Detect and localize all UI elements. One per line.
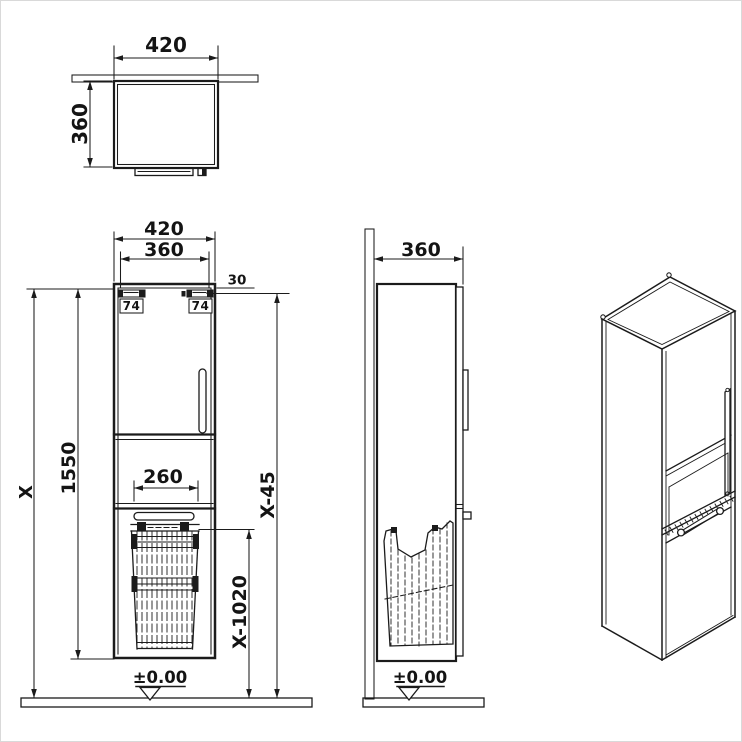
bracket-right-label: 74 — [192, 299, 210, 313]
front-bracket-left — [118, 290, 145, 297]
front-lower-door-handle — [134, 513, 194, 521]
bracket-left-label: 74 — [123, 299, 141, 313]
top-depth-label: 360 — [68, 103, 92, 145]
iso-open-niche — [662, 453, 735, 535]
side-wall-hatch — [365, 229, 374, 699]
side-door-panel — [456, 287, 463, 656]
side-upper-handle — [463, 370, 468, 430]
dim-upper-right-label: X-45 — [257, 471, 279, 518]
top-view-dim-width: 420 — [114, 33, 218, 79]
front-width-label: 420 — [144, 218, 184, 240]
front-datum-label: ±0.00 — [133, 668, 188, 687]
top-view-dim-depth: 360 — [68, 81, 112, 167]
side-depth-label: 360 — [401, 239, 441, 261]
iso-lower-door — [666, 507, 731, 543]
basket-band-middle — [132, 576, 199, 592]
front-bracket-right-tag: 74 — [189, 299, 212, 313]
basket-width-label: 260 — [143, 466, 183, 488]
side-datum: ±0.00 — [393, 668, 448, 700]
side-lower-handle — [463, 512, 471, 519]
front-view: 74 74 — [16, 218, 312, 707]
body-height-label: 1550 — [58, 442, 80, 495]
side-cabinet-outline — [377, 284, 456, 661]
side-view: 360 ±0.00 — [363, 229, 484, 707]
total-height-label: X — [16, 485, 37, 499]
isometric-view — [601, 273, 735, 660]
iso-cabinet-body — [601, 273, 735, 660]
front-dim-bracket-offset: 30 — [207, 273, 289, 294]
side-floor-hatch — [363, 698, 484, 707]
side-dim-depth: 360 — [374, 239, 463, 284]
side-datum-label: ±0.00 — [393, 668, 448, 687]
top-view-door-handle — [135, 169, 206, 176]
front-bracket-span-label: 360 — [144, 239, 184, 261]
front-dim-body-height: 1550 — [58, 289, 114, 659]
front-datum: ±0.00 — [133, 668, 188, 700]
top-view: 420 360 — [68, 33, 258, 176]
front-dim-upper-right: X-45 — [257, 294, 280, 698]
front-dim-bracket-span: 360 — [121, 239, 210, 288]
iso-upper-door — [666, 388, 731, 495]
front-floor-hatch — [21, 698, 312, 707]
drawing-canvas: 420 360 — [1, 1, 742, 742]
front-bracket-left-tag: 74 — [120, 299, 143, 313]
top-view-cabinet-outline — [114, 81, 218, 168]
iso-upper-door-handle — [725, 389, 730, 495]
technical-drawing-sheet: 420 360 — [0, 0, 742, 742]
dim-lower-right-label: X-1020 — [229, 575, 251, 649]
bracket-offset-label: 30 — [228, 273, 247, 289]
front-upper-door-handle — [199, 369, 206, 433]
top-width-label: 420 — [145, 33, 187, 57]
